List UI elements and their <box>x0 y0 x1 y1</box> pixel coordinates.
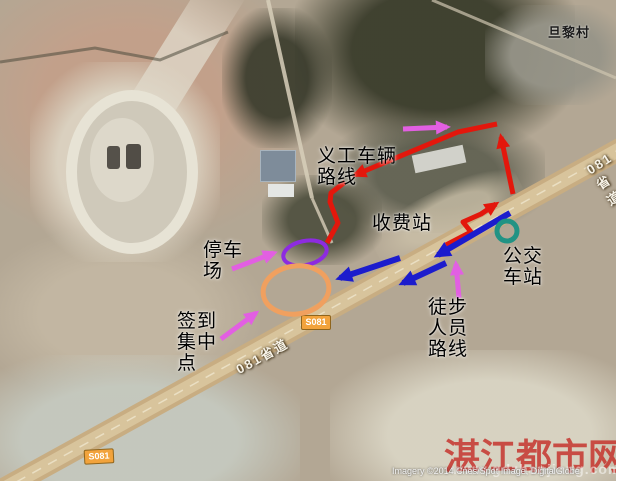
label-bus-station: 公交 车站 <box>503 246 543 288</box>
blue-walk-arrow-crossing <box>403 263 446 283</box>
red-route-right-edge-arrow <box>501 137 513 194</box>
label-toll-station: 收费站 <box>372 213 432 234</box>
blue-walk-arrow-to-gathering <box>340 258 400 278</box>
red-route-to-parking <box>327 182 345 243</box>
bus-station-circle <box>497 221 517 241</box>
label-volunteer-route: 义工车辆 路线 <box>317 146 397 188</box>
label-signin-point: 签到 集中 点 <box>177 311 217 374</box>
magenta-pointer-signin <box>221 313 256 339</box>
label-parking-lot: 停车 场 <box>203 240 243 282</box>
map-screenshot: S081 S081 081省道 081省道 <box>0 0 622 492</box>
imagery-copyright: Imagery ©2014 Cnes/Spot Image, DigitalGl… <box>392 466 580 476</box>
magenta-pointer-walkroute <box>456 264 459 298</box>
label-village-name: 旦黎村 <box>548 22 590 41</box>
signin-gathering-ellipse <box>260 262 332 319</box>
magenta-pointer-top <box>403 127 447 129</box>
route-annotations-layer <box>0 0 616 481</box>
satellite-image: S081 S081 081省道 081省道 <box>0 0 616 481</box>
label-walking-route: 徒步 人员 路线 <box>428 297 468 360</box>
